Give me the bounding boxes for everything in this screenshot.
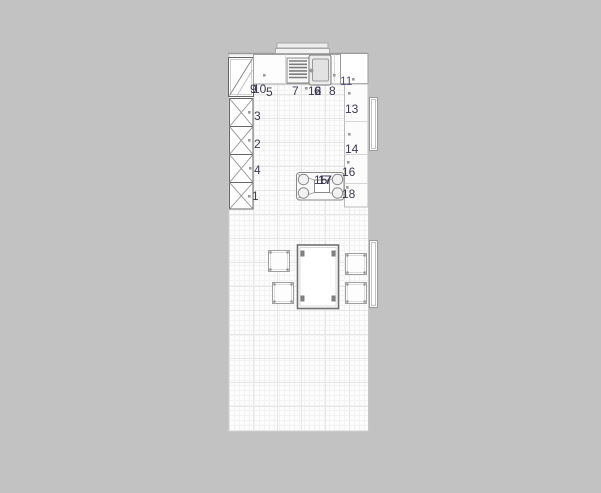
dining-table[interactable] (298, 245, 339, 309)
item-marker[interactable] (248, 111, 251, 114)
chair-corner-mark (364, 272, 366, 274)
sink-bowl-inner (313, 59, 329, 81)
tall-unit-outline[interactable] (230, 99, 254, 210)
sink-faucet (310, 69, 314, 73)
item-number-18[interactable]: 18 (342, 188, 355, 200)
chair-top-left[interactable] (269, 251, 290, 272)
plan-canvas[interactable]: 9 10 5 7 12 6 8 11 13 14 16 15 17 18 3 2… (0, 0, 601, 493)
chair-seat[interactable] (346, 254, 367, 275)
item-number-6[interactable]: 6 (314, 85, 321, 97)
table-leg (332, 296, 336, 302)
table-leg (301, 251, 305, 257)
item-marker[interactable] (248, 195, 251, 198)
item-marker[interactable] (348, 92, 351, 95)
sink-symbol[interactable] (287, 55, 331, 85)
item-marker[interactable] (348, 133, 351, 136)
plan-symbols-layer (0, 0, 601, 493)
chair-corner-mark (269, 269, 271, 271)
chair-corner-mark (346, 254, 348, 256)
chair-corner-mark (364, 254, 366, 256)
chair-top-right[interactable] (346, 254, 367, 275)
item-number-4[interactable]: 4 (254, 164, 261, 176)
item-number-7[interactable]: 7 (292, 85, 299, 97)
chair-corner-mark (287, 251, 289, 253)
hood-symbol[interactable] (276, 43, 330, 54)
chair-corner-mark (364, 283, 366, 285)
item-number-5[interactable]: 5 (266, 86, 273, 98)
item-marker[interactable] (347, 161, 350, 164)
chair-corner-mark (364, 301, 366, 303)
window-upper-frame[interactable] (370, 98, 378, 151)
item-number-17[interactable]: 17 (318, 174, 331, 186)
item-marker[interactable] (249, 167, 252, 170)
item-number-14[interactable]: 14 (345, 143, 358, 155)
window-lower-frame[interactable] (370, 241, 378, 308)
chair-bottom-right[interactable] (346, 283, 367, 304)
item-marker[interactable] (248, 139, 251, 142)
chair-seat[interactable] (346, 283, 367, 304)
sofa-arm-roll (298, 188, 308, 198)
item-number-13[interactable]: 13 (345, 103, 358, 115)
item-number-16[interactable]: 16 (342, 166, 355, 178)
table-leg (301, 296, 305, 302)
chair-seat[interactable] (273, 283, 294, 304)
item-number-11[interactable]: 11 (340, 75, 352, 87)
chair-bottom-left[interactable] (273, 283, 294, 304)
chair-corner-mark (273, 301, 275, 303)
chair-corner-mark (291, 301, 293, 303)
tall-unit-column[interactable] (230, 99, 254, 210)
item-number-2[interactable]: 2 (254, 138, 261, 150)
window-upper[interactable] (370, 98, 378, 151)
item-number-1[interactable]: 1 (252, 190, 259, 202)
chair-corner-mark (269, 251, 271, 253)
hood-upper-rect[interactable] (277, 43, 328, 48)
item-marker[interactable] (333, 74, 336, 77)
item-number-8[interactable]: 8 (329, 85, 336, 97)
item-marker[interactable] (263, 74, 266, 77)
item-number-10[interactable]: 10 (253, 83, 266, 95)
chair-corner-mark (287, 269, 289, 271)
table-leg (332, 251, 336, 257)
chair-corner-mark (346, 272, 348, 274)
chair-corner-mark (273, 283, 275, 285)
chair-seat[interactable] (269, 251, 290, 272)
chair-corner-mark (291, 283, 293, 285)
chair-corner-mark (346, 283, 348, 285)
sofa-arm-roll (298, 174, 308, 184)
item-number-3[interactable]: 3 (254, 110, 261, 122)
chair-corner-mark (346, 301, 348, 303)
hood-lower-rect[interactable] (276, 49, 330, 54)
window-lower[interactable] (370, 241, 378, 308)
